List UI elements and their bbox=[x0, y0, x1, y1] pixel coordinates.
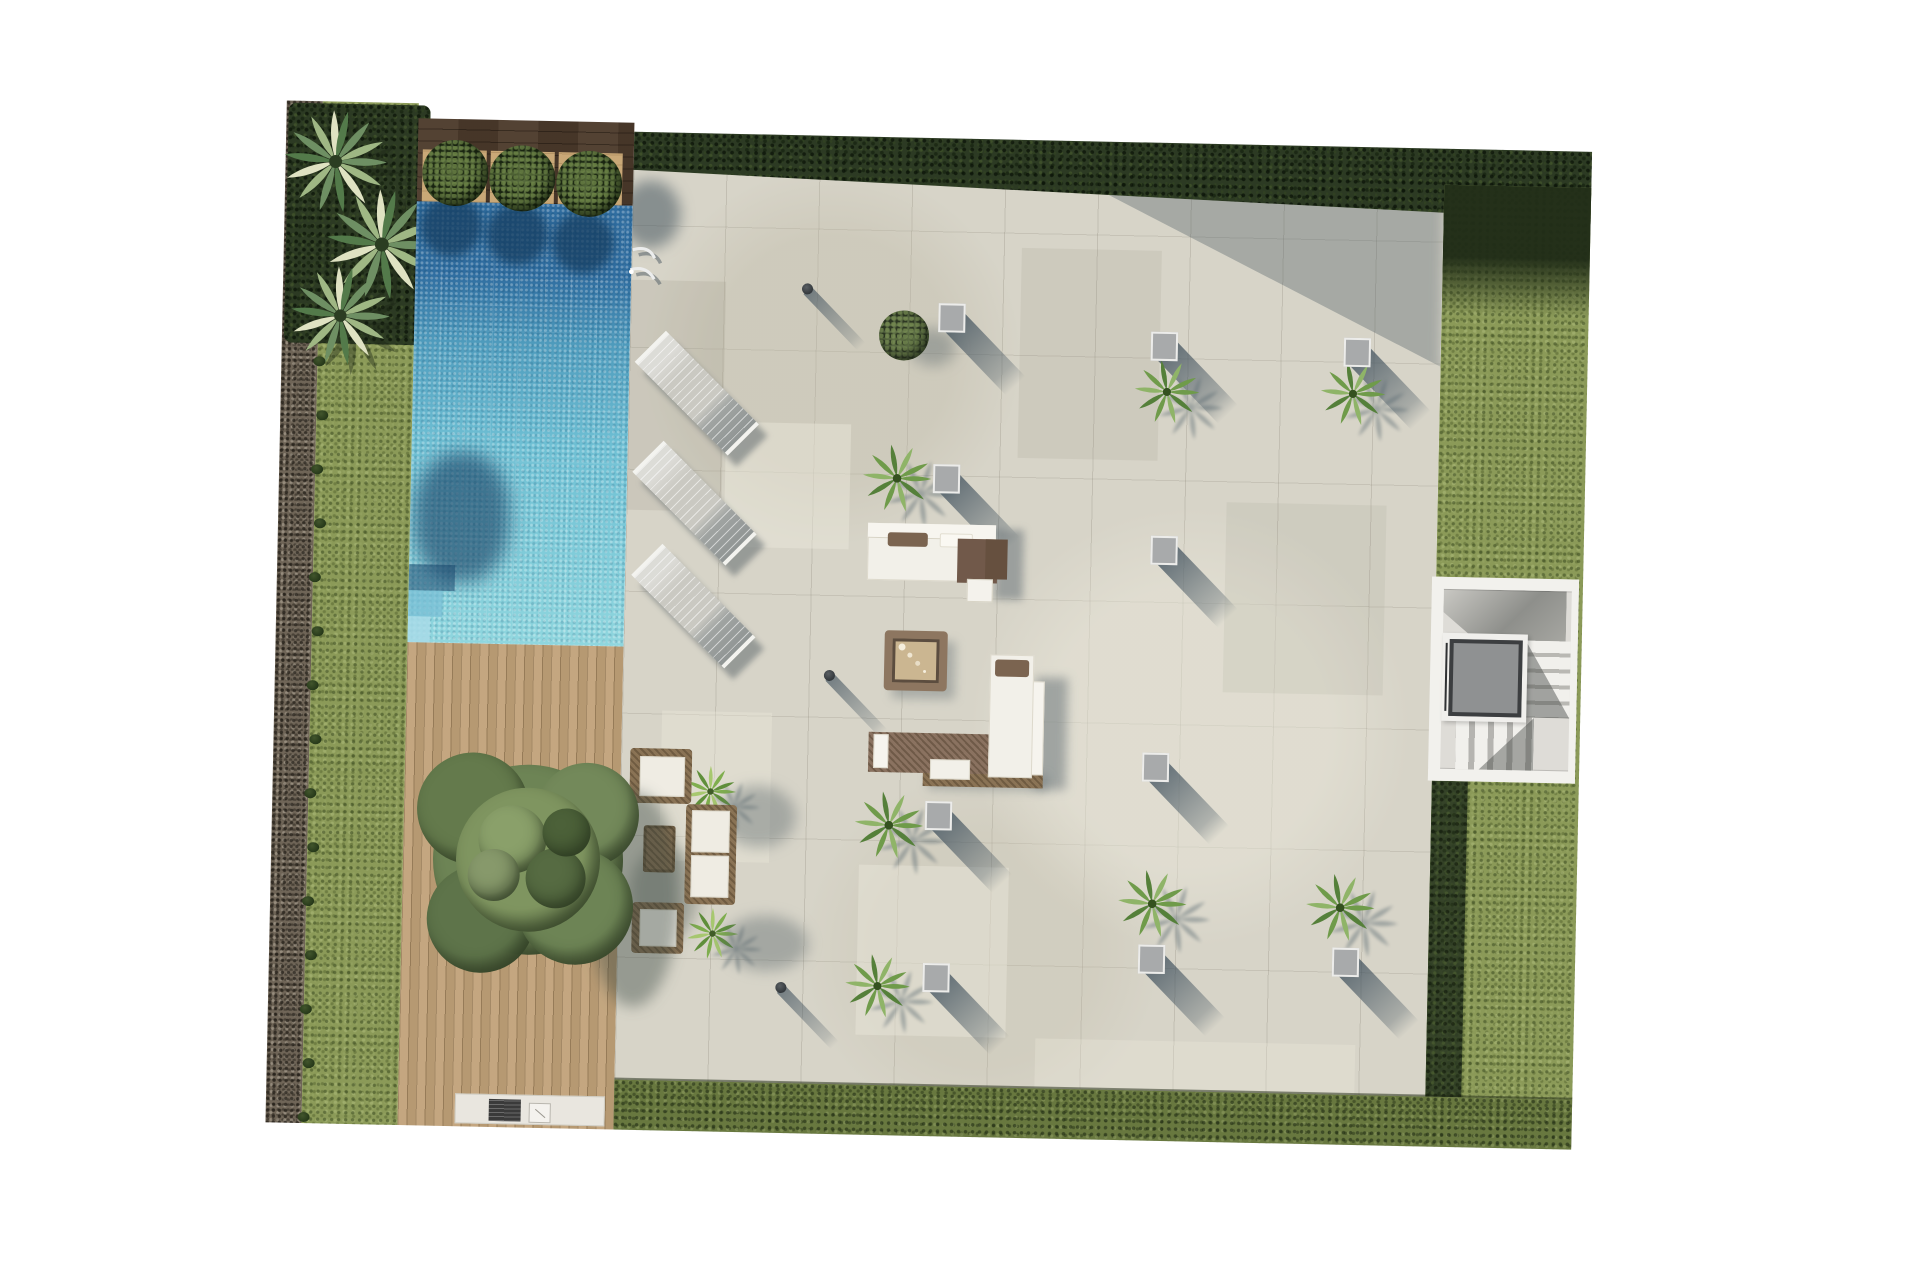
sofa-cushion bbox=[691, 810, 730, 853]
hedge-strip-below-stairs bbox=[1425, 781, 1468, 1098]
elevator-door-line bbox=[1444, 643, 1447, 711]
planter-box bbox=[1344, 338, 1372, 368]
bollard-shadow bbox=[777, 985, 839, 1049]
tree-pool-shadow bbox=[413, 451, 511, 583]
planter-box bbox=[1151, 332, 1179, 362]
planter-box bbox=[922, 963, 950, 993]
hedge-shadow-on-lawn bbox=[1442, 185, 1592, 318]
sofa-brown-cushion bbox=[888, 532, 928, 547]
pool-corner-steps bbox=[408, 564, 460, 643]
lawn-tuft bbox=[302, 896, 314, 906]
armchair-cushion bbox=[639, 756, 685, 797]
bush-pool-shadow bbox=[420, 201, 483, 257]
pool-step bbox=[409, 564, 456, 591]
lounge-shadow bbox=[723, 915, 809, 972]
bbq-grill bbox=[489, 1099, 521, 1122]
terrace-palm bbox=[1115, 867, 1189, 945]
sofa-headrest-brown bbox=[995, 659, 1029, 677]
terrace-palm bbox=[1132, 357, 1202, 431]
bush-pool-shadow bbox=[551, 211, 614, 274]
terrace-palm bbox=[852, 788, 926, 866]
terrace-palm bbox=[1303, 871, 1377, 949]
sofa-cushion bbox=[690, 855, 729, 898]
lawn-tuft bbox=[313, 356, 325, 366]
planter-box bbox=[1142, 753, 1170, 783]
planter-box bbox=[933, 464, 961, 494]
lawn-tuft bbox=[297, 1112, 309, 1122]
palm-planting-bed bbox=[284, 103, 431, 346]
lawn-tuft bbox=[314, 518, 326, 528]
planter-box bbox=[1332, 948, 1360, 978]
terrace-palm bbox=[1318, 359, 1388, 433]
terrace-palm bbox=[860, 442, 934, 520]
bush-pool-shadow bbox=[485, 203, 548, 266]
planter-box bbox=[1150, 536, 1178, 566]
lawn-tuft bbox=[307, 680, 319, 690]
elevator-frame bbox=[1441, 633, 1528, 723]
sofa-side-table bbox=[966, 579, 992, 603]
sofa-white-pillow bbox=[873, 734, 889, 768]
bollard-shadow bbox=[804, 287, 866, 351]
lawn-tuft bbox=[309, 734, 321, 744]
large-tree bbox=[414, 745, 643, 974]
sofa-set-l-shape bbox=[867, 652, 1070, 796]
swimming-pool bbox=[408, 201, 633, 646]
sofa-armrest-brown bbox=[985, 539, 1008, 579]
fan-palm bbox=[287, 263, 393, 374]
paved-terrace bbox=[614, 170, 1444, 1097]
planter-box bbox=[938, 303, 966, 333]
pool-step bbox=[408, 590, 443, 617]
bbq-sink bbox=[528, 1103, 550, 1123]
planter-box bbox=[1138, 944, 1166, 974]
sink-line bbox=[535, 1109, 545, 1118]
page-background bbox=[0, 0, 1920, 1280]
lawn-tuft bbox=[311, 464, 323, 474]
sofa-set-top bbox=[866, 523, 1018, 606]
lawn-tuft bbox=[305, 950, 317, 960]
staircase-block bbox=[1428, 577, 1579, 784]
planter-box bbox=[925, 801, 953, 831]
elevator-cab bbox=[1448, 639, 1523, 718]
pool-step bbox=[408, 616, 431, 642]
sofa-ottoman-white bbox=[930, 759, 970, 780]
site-plan-rendering bbox=[261, 100, 1592, 1149]
bbq-counter bbox=[454, 1093, 605, 1126]
tile-patch bbox=[1223, 502, 1387, 695]
terrace-palm bbox=[843, 951, 913, 1025]
pool-ladder bbox=[622, 240, 669, 291]
